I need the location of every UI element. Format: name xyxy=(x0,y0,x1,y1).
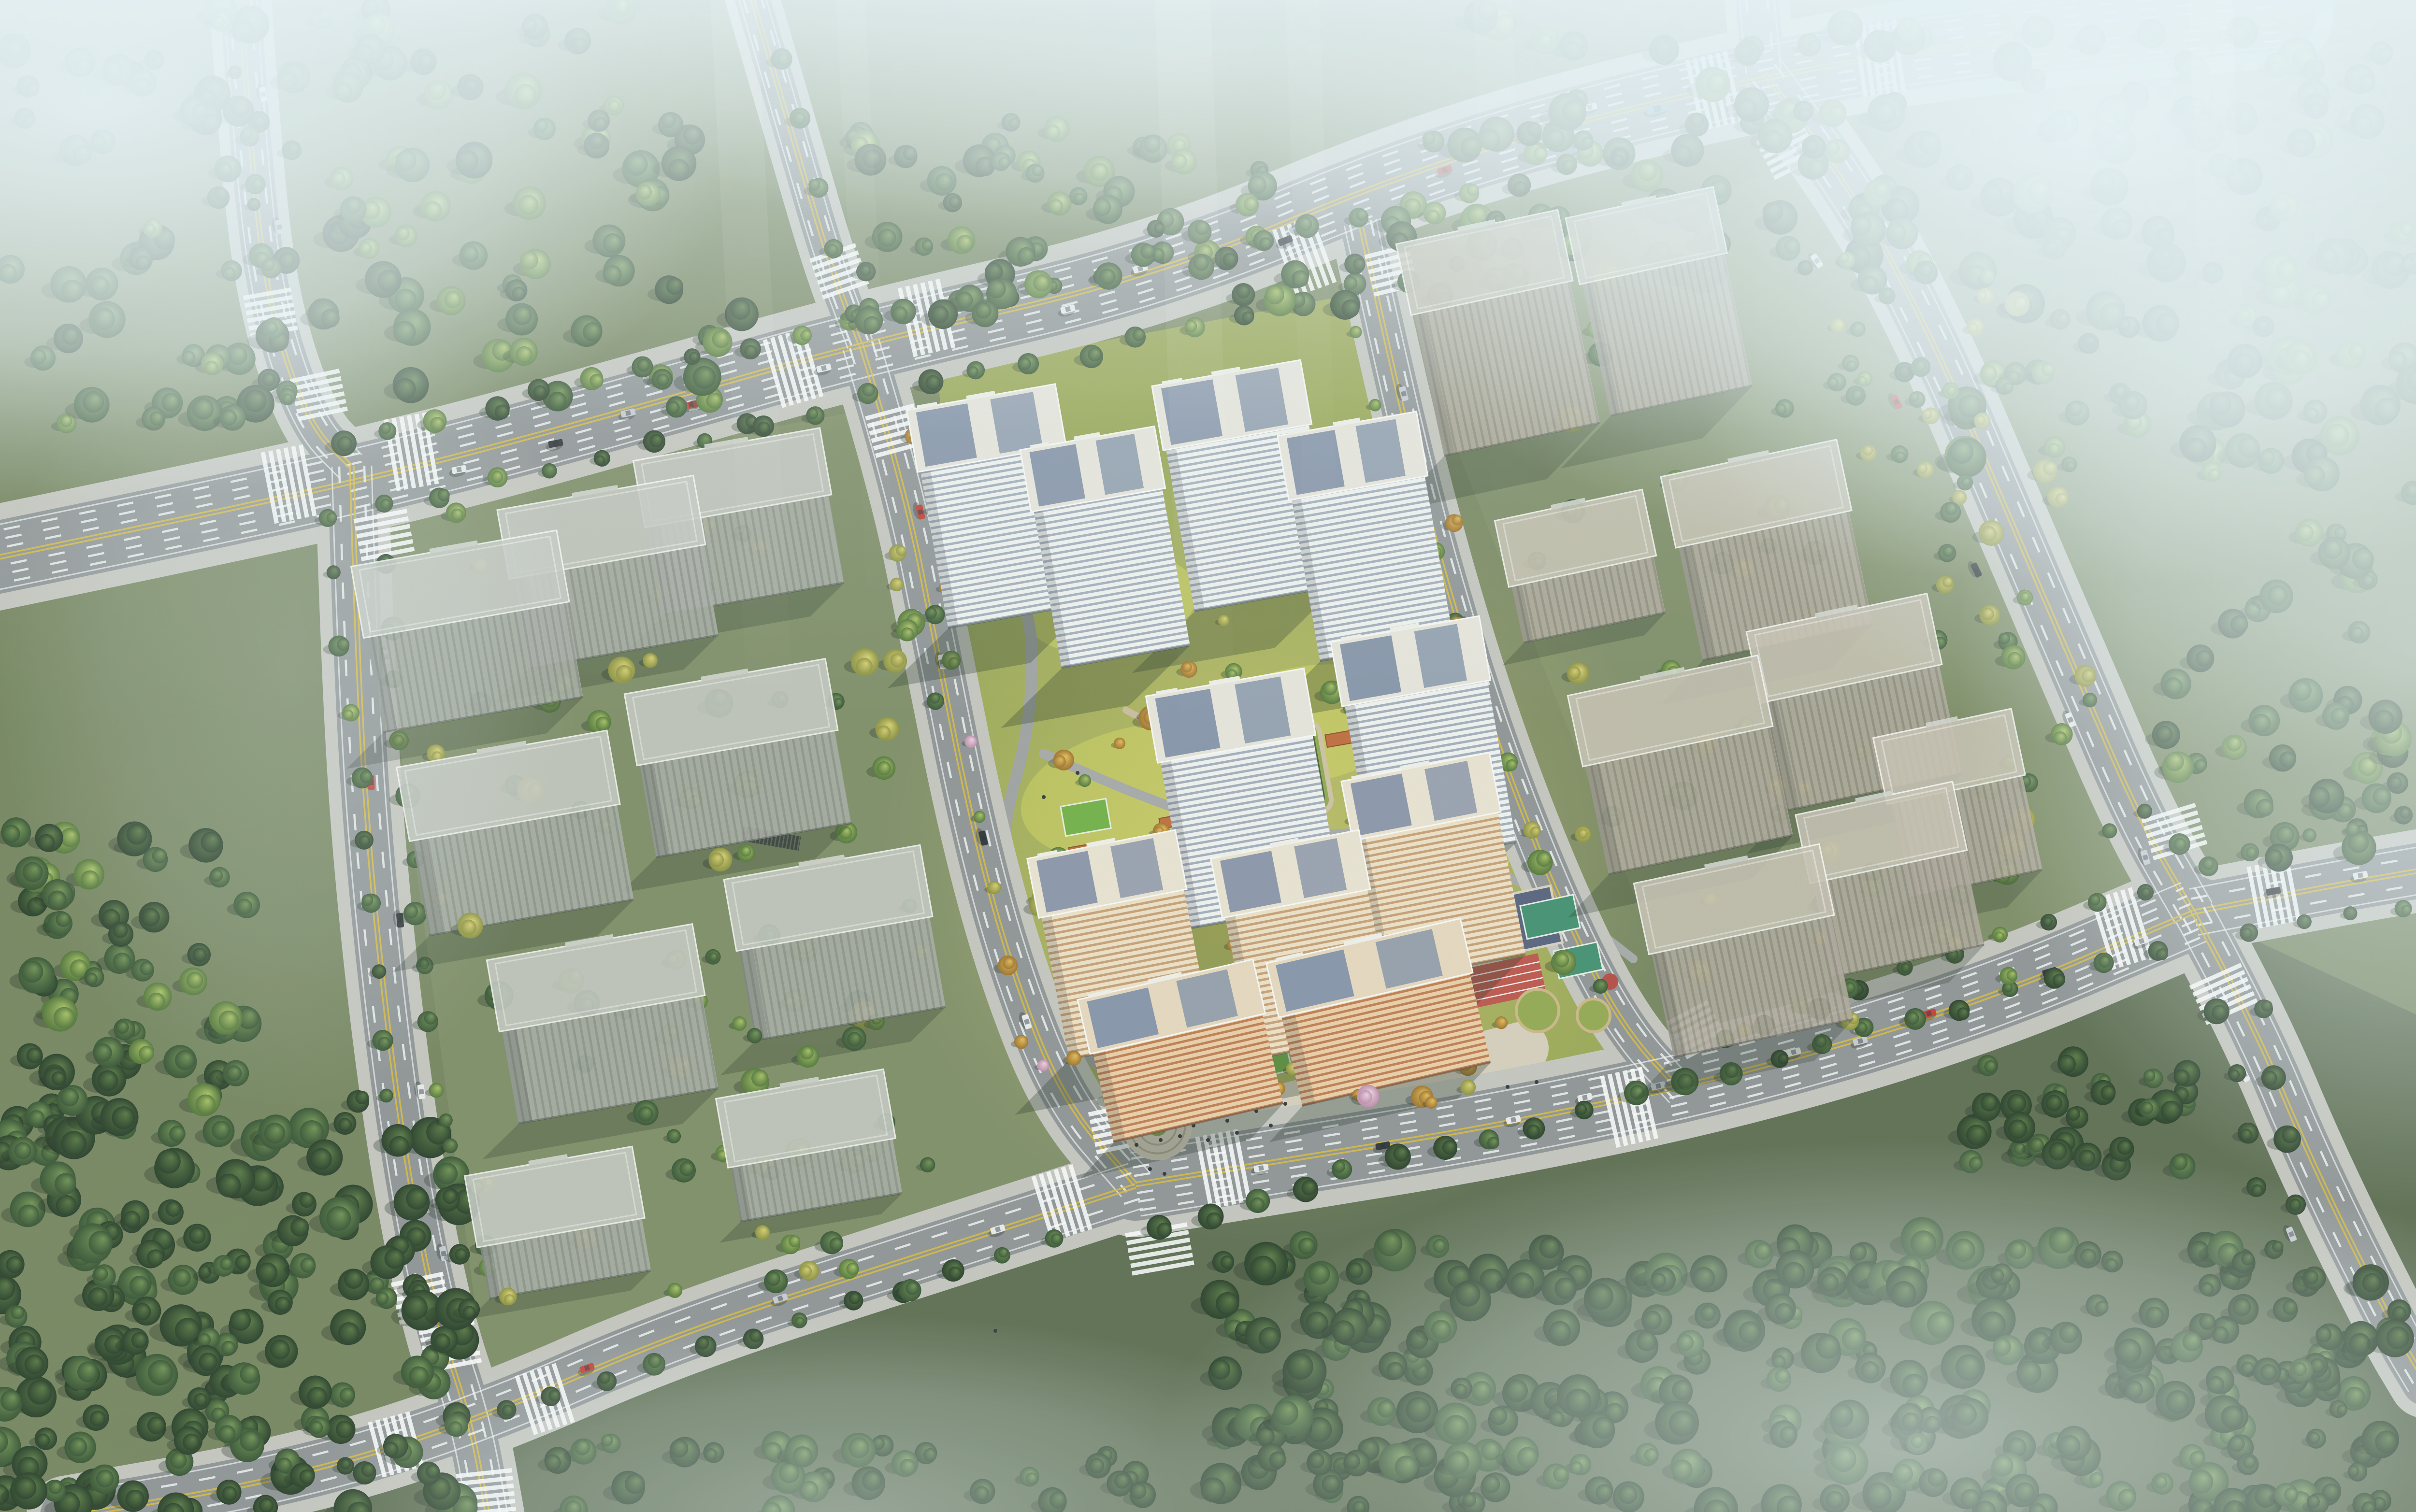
scene-root xyxy=(0,0,2416,1512)
atmosphere xyxy=(0,0,2416,1512)
scene-svg xyxy=(0,0,2416,1512)
aerial-render-canvas xyxy=(0,0,2416,1512)
